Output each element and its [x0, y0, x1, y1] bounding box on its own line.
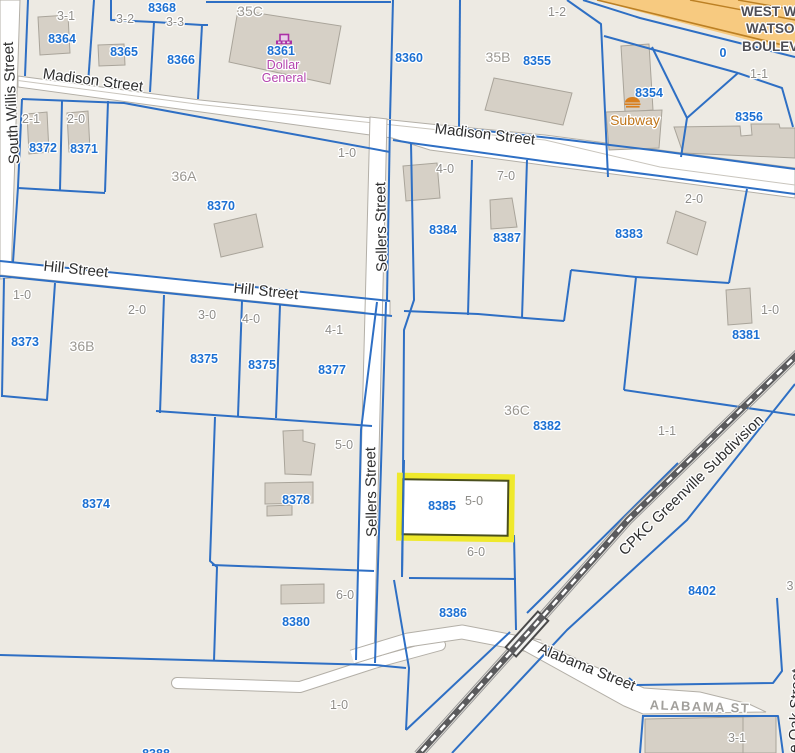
svg-text:8386: 8386 — [439, 606, 467, 620]
svg-text:3-2: 3-2 — [116, 12, 134, 26]
svg-text:8402: 8402 — [688, 584, 716, 598]
svg-text:3-1: 3-1 — [728, 731, 746, 745]
svg-text:8373: 8373 — [11, 335, 39, 349]
svg-text:8375: 8375 — [190, 352, 218, 366]
svg-text:8371: 8371 — [70, 142, 98, 156]
svg-text:3-1: 3-1 — [57, 9, 75, 23]
svg-text:8383: 8383 — [615, 227, 643, 241]
svg-text:3-3: 3-3 — [166, 15, 184, 29]
svg-text:36B: 36B — [70, 338, 95, 354]
svg-text:General: General — [262, 71, 306, 85]
svg-text:1-0: 1-0 — [761, 303, 779, 317]
svg-text:0: 0 — [720, 46, 727, 60]
svg-text:5-0: 5-0 — [465, 494, 483, 508]
svg-text:8375: 8375 — [248, 358, 276, 372]
svg-text:BOULEVA: BOULEVA — [742, 39, 795, 54]
svg-text:8354: 8354 — [635, 86, 663, 100]
svg-text:Sellers Street: Sellers Street — [372, 181, 391, 272]
svg-text:4-0: 4-0 — [436, 162, 454, 176]
svg-text:8356: 8356 — [735, 110, 763, 124]
svg-text:Sellers Street: Sellers Street — [362, 446, 381, 537]
svg-text:8377: 8377 — [318, 363, 346, 377]
svg-text:1-1: 1-1 — [658, 424, 676, 438]
svg-text:WEST W: WEST W — [741, 4, 795, 19]
svg-text:8382: 8382 — [533, 419, 561, 433]
svg-text:2-1: 2-1 — [22, 112, 40, 126]
svg-text:8387: 8387 — [493, 231, 521, 245]
svg-text:8364: 8364 — [48, 32, 76, 46]
svg-text:2-0: 2-0 — [685, 192, 703, 206]
svg-text:4-1: 4-1 — [325, 323, 343, 337]
svg-text:8368: 8368 — [148, 1, 176, 15]
svg-text:1-0: 1-0 — [13, 288, 31, 302]
svg-text:1-1: 1-1 — [750, 67, 768, 81]
svg-text:8378: 8378 — [282, 493, 310, 507]
svg-text:2-0: 2-0 — [128, 303, 146, 317]
svg-text:8388: 8388 — [142, 747, 170, 753]
svg-text:Dollar: Dollar — [267, 58, 300, 72]
svg-text:36C: 36C — [504, 402, 530, 418]
svg-text:6-0: 6-0 — [336, 588, 354, 602]
svg-text:4-0: 4-0 — [242, 312, 260, 326]
svg-text:6-0: 6-0 — [467, 545, 485, 559]
svg-text:WATSO: WATSO — [746, 21, 795, 36]
svg-text:3: 3 — [787, 579, 794, 593]
svg-text:8385: 8385 — [428, 499, 456, 513]
svg-text:8381: 8381 — [732, 328, 760, 342]
svg-text:8366: 8366 — [167, 53, 195, 67]
svg-text:8360: 8360 — [395, 51, 423, 65]
svg-text:2-0: 2-0 — [67, 112, 85, 126]
svg-text:1-2: 1-2 — [548, 5, 566, 19]
svg-text:8380: 8380 — [282, 615, 310, 629]
svg-text:8370: 8370 — [207, 199, 235, 213]
svg-text:5-0: 5-0 — [335, 438, 353, 452]
svg-text:8384: 8384 — [429, 223, 457, 237]
svg-text:7-0: 7-0 — [497, 169, 515, 183]
svg-text:35B: 35B — [486, 49, 511, 65]
svg-text:36A: 36A — [172, 168, 198, 184]
svg-text:35C: 35C — [237, 3, 263, 19]
svg-text:8372: 8372 — [29, 141, 57, 155]
svg-text:1-0: 1-0 — [330, 698, 348, 712]
svg-text:8361: 8361 — [267, 44, 295, 58]
svg-text:1-0: 1-0 — [338, 146, 356, 160]
svg-text:3-0: 3-0 — [198, 308, 216, 322]
svg-text:8374: 8374 — [82, 497, 110, 511]
svg-text:8355: 8355 — [523, 54, 551, 68]
svg-text:Subway: Subway — [610, 112, 660, 128]
svg-text:8365: 8365 — [110, 45, 138, 59]
